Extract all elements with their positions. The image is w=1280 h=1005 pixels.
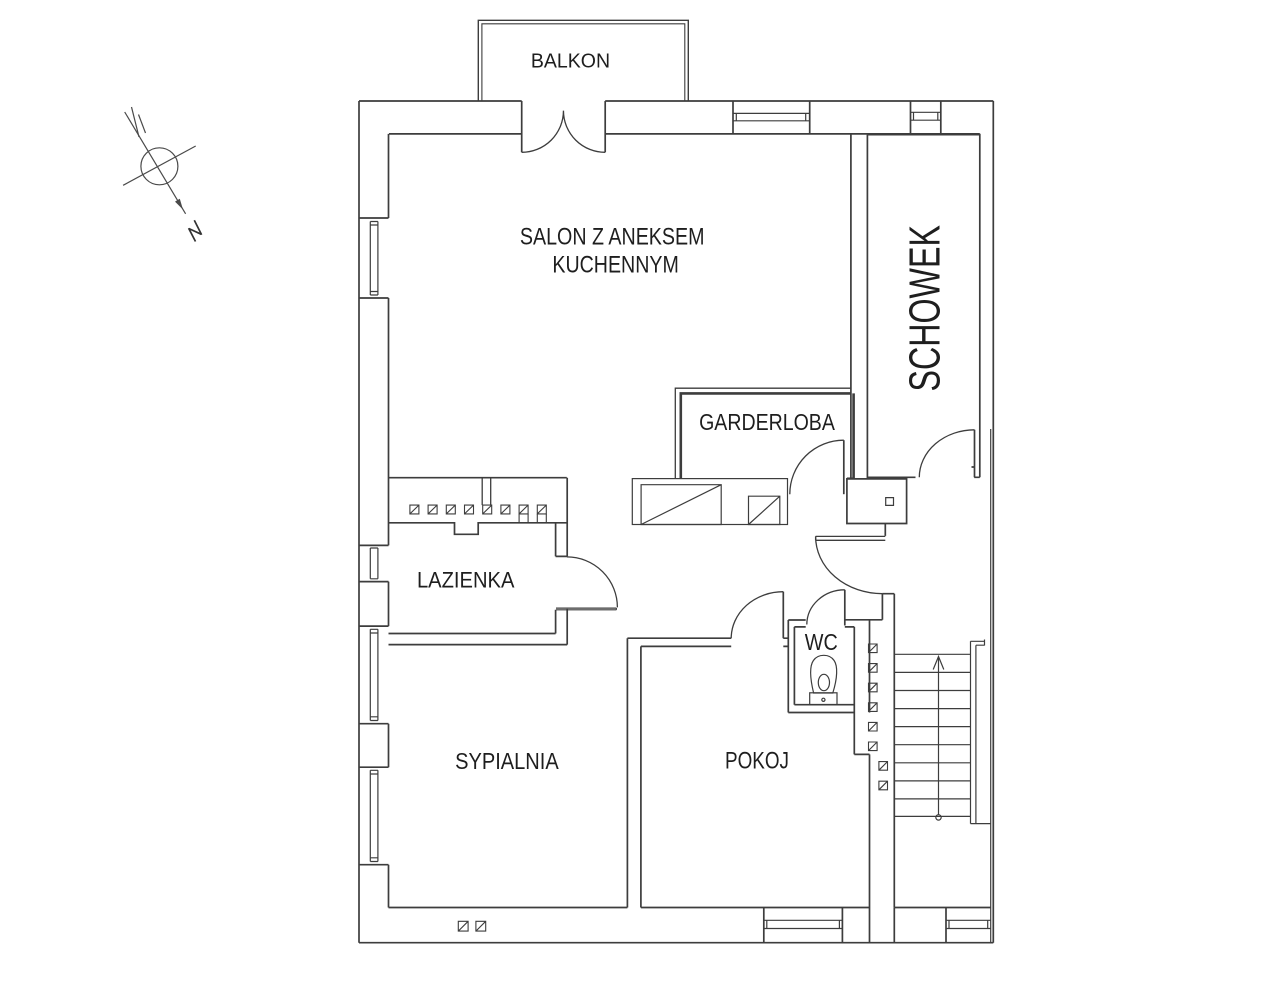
svg-text:BALKON: BALKON	[531, 51, 610, 73]
svg-text:WC: WC	[805, 629, 838, 655]
svg-text:SCHOWEK: SCHOWEK	[900, 225, 949, 392]
svg-text:GARDERLOBA: GARDERLOBA	[699, 409, 836, 435]
svg-text:POKOJ: POKOJ	[725, 748, 789, 775]
svg-text:LAZIENKA: LAZIENKA	[417, 567, 515, 592]
svg-text:SYPIALNIA: SYPIALNIA	[455, 748, 559, 774]
svg-text:KUCHENNYM: KUCHENNYM	[552, 252, 678, 278]
svg-text:SALON Z ANEKSEM: SALON Z ANEKSEM	[520, 224, 705, 250]
